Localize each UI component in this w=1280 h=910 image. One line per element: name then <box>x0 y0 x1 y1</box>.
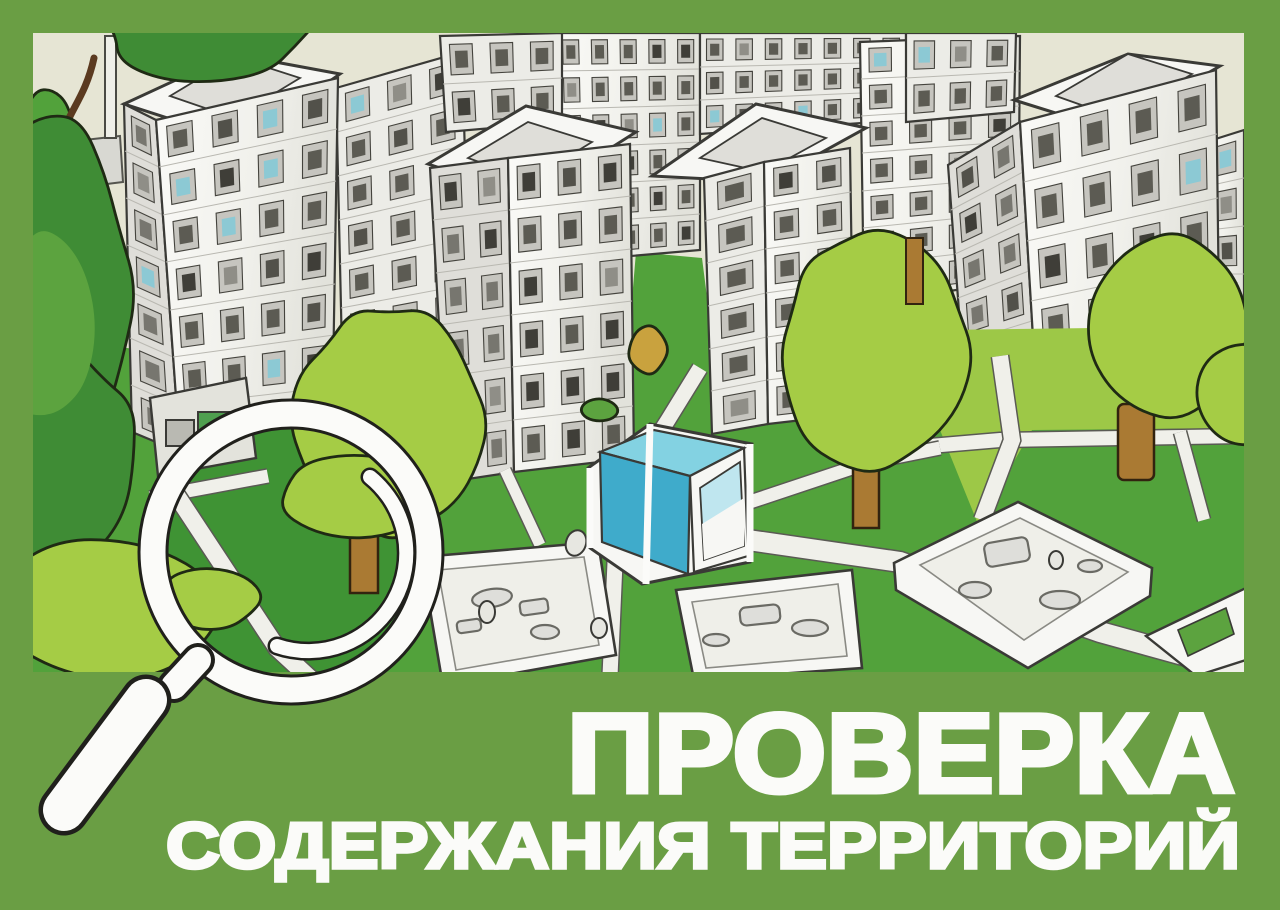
svg-text:ПРОВЕРКА: ПРОВЕРКА <box>567 691 1235 816</box>
svg-text:СОДЕРЖАНИЯ ТЕРРИТОРИЙ: СОДЕРЖАНИЯ ТЕРРИТОРИЙ <box>166 809 1240 883</box>
